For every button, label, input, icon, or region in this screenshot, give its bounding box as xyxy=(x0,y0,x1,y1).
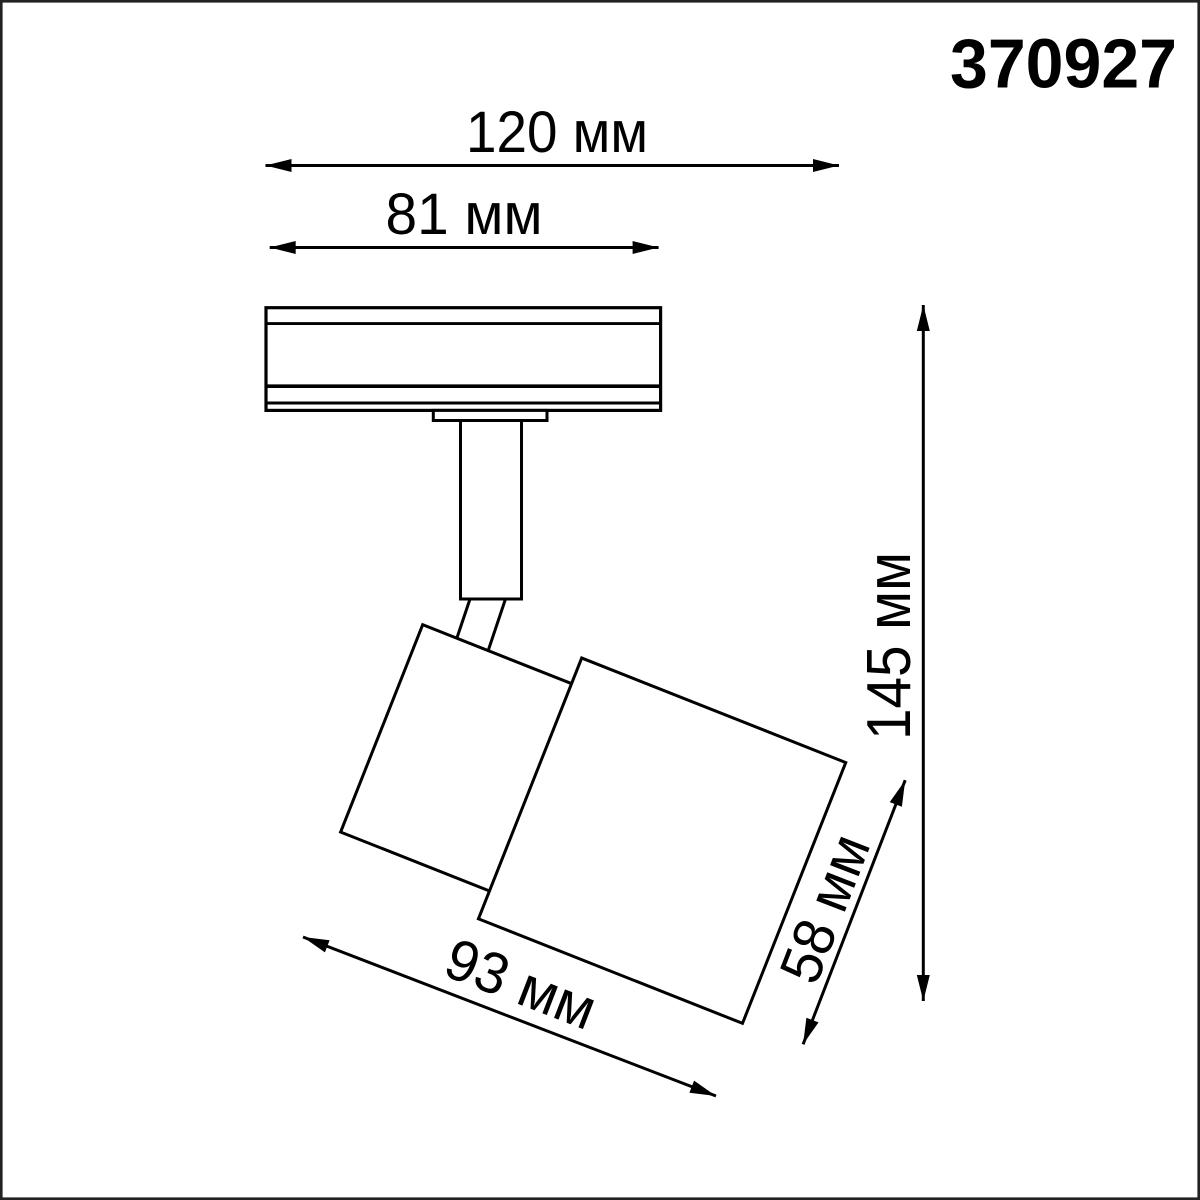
svg-text:145 мм: 145 мм xyxy=(855,552,924,740)
svg-text:81 мм: 81 мм xyxy=(386,182,543,247)
svg-text:120 мм: 120 мм xyxy=(466,100,648,165)
svg-text:370927: 370927 xyxy=(950,25,1177,103)
